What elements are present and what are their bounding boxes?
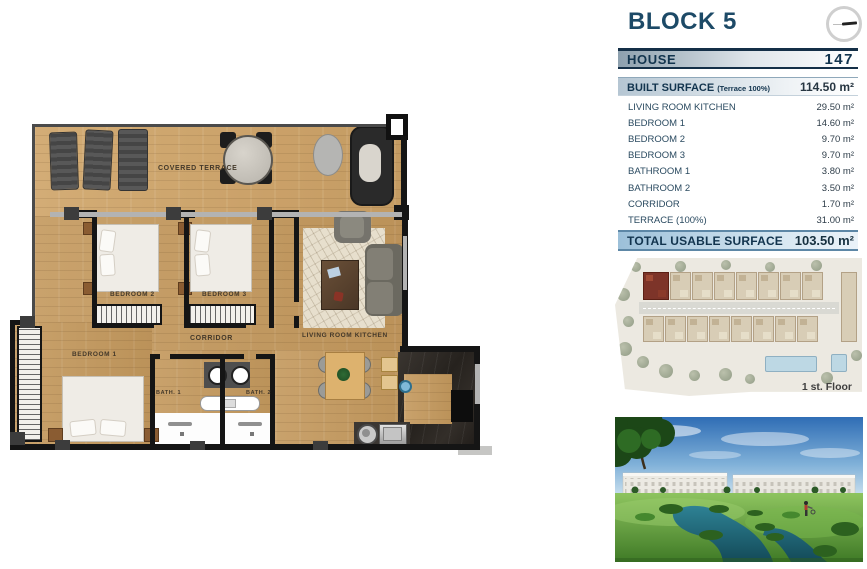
site-unit bbox=[797, 316, 818, 342]
floor-label: 1 st. Floor bbox=[802, 381, 852, 393]
site-plan: 1 st. Floor bbox=[615, 258, 862, 396]
row-label: BEDROOM 1 bbox=[628, 118, 685, 129]
wardrobe bbox=[94, 304, 162, 325]
pillow bbox=[99, 229, 117, 253]
tree bbox=[623, 316, 634, 327]
wall bbox=[92, 210, 97, 328]
kitchen-sink bbox=[399, 380, 412, 393]
photo-bottom-shade bbox=[615, 558, 863, 562]
column bbox=[257, 207, 272, 220]
wall bbox=[92, 323, 154, 328]
wall bbox=[10, 444, 480, 450]
sofa-cushion bbox=[367, 248, 393, 280]
room-label-corridor: CORRIDOR bbox=[190, 335, 233, 342]
site-unit bbox=[714, 272, 735, 300]
row-label: BATHROOM 1 bbox=[628, 166, 690, 177]
plant bbox=[337, 368, 350, 381]
table-row: BEDROOM 114.60 m² bbox=[620, 115, 857, 131]
table-row: BATHROOM 13.80 m² bbox=[620, 164, 857, 180]
site-building-right bbox=[841, 272, 857, 342]
armchair-cushion bbox=[340, 216, 364, 238]
bar-stool bbox=[381, 375, 398, 390]
tree bbox=[721, 260, 731, 270]
room-label-bedroom2: BEDROOM 2 bbox=[110, 291, 155, 298]
floor-plan: COVERED TERRACE BEDROOM 2 BEDROOM 3 CORR… bbox=[10, 110, 493, 462]
row-label: CORRIDOR bbox=[628, 199, 680, 210]
tree bbox=[659, 364, 673, 378]
table-row: BEDROOM 39.70 m² bbox=[620, 148, 857, 164]
hanging-chair-cushion bbox=[359, 144, 381, 182]
row-value: 14.60 m² bbox=[817, 118, 855, 129]
site-unit bbox=[731, 316, 752, 342]
row-label: TERRACE (100%) bbox=[628, 215, 707, 226]
wall bbox=[150, 354, 155, 446]
pillow bbox=[69, 419, 97, 438]
site-unit bbox=[780, 272, 801, 300]
room-label-terrace: COVERED TERRACE bbox=[158, 165, 237, 172]
washing-machine-door bbox=[362, 429, 370, 437]
compass-icon bbox=[826, 6, 862, 42]
render-photo bbox=[615, 417, 863, 562]
site-unit bbox=[753, 316, 774, 342]
site-unit bbox=[758, 272, 779, 300]
house-number: 147 bbox=[824, 51, 854, 68]
drain bbox=[250, 432, 254, 436]
site-pool-small bbox=[831, 354, 847, 372]
sun-lounger bbox=[82, 129, 113, 190]
wall bbox=[294, 316, 299, 328]
site-building-row-bottom bbox=[643, 316, 823, 342]
room-label-living: LIVING ROOM KITCHEN bbox=[302, 332, 388, 339]
steel-sink-basin bbox=[383, 427, 402, 441]
wall bbox=[294, 210, 299, 302]
house-header-bar: HOUSE 147 bbox=[618, 48, 858, 69]
drain bbox=[180, 432, 184, 436]
tree bbox=[811, 260, 822, 271]
row-value: 9.70 m² bbox=[822, 150, 854, 161]
site-unit bbox=[692, 272, 713, 300]
column bbox=[64, 207, 79, 220]
wall bbox=[184, 210, 189, 328]
built-surface-value: 114.50 m² bbox=[800, 80, 854, 94]
wardrobe bbox=[17, 326, 42, 442]
total-label: TOTAL USABLE SURFACE bbox=[627, 234, 783, 248]
pillow bbox=[194, 253, 211, 276]
wall bbox=[220, 354, 225, 446]
built-surface-bar: BUILT SURFACE(Terrace 100%) 114.50 m² bbox=[618, 77, 858, 96]
column bbox=[313, 441, 328, 450]
site-unit bbox=[709, 316, 730, 342]
row-value: 3.80 m² bbox=[822, 166, 854, 177]
site-road bbox=[639, 302, 839, 314]
site-pool bbox=[765, 356, 817, 372]
row-label: LIVING ROOM KITCHEN bbox=[628, 102, 736, 113]
compass-needle bbox=[842, 21, 857, 25]
wall bbox=[10, 320, 15, 448]
tree bbox=[631, 262, 641, 272]
site-building-row-top bbox=[643, 272, 823, 300]
row-value: 9.70 m² bbox=[822, 134, 854, 145]
wall bbox=[150, 354, 160, 359]
wall bbox=[32, 124, 408, 127]
wall bbox=[270, 354, 275, 446]
wall bbox=[256, 354, 275, 359]
window-strip bbox=[50, 212, 402, 217]
site-unit bbox=[687, 316, 708, 342]
site-unit bbox=[775, 316, 796, 342]
bar-stool bbox=[381, 357, 398, 372]
room-label-bath1: BATH. 1 bbox=[156, 390, 181, 396]
site-unit bbox=[643, 316, 664, 342]
wall bbox=[400, 346, 480, 352]
tree bbox=[719, 368, 732, 381]
tree bbox=[745, 374, 755, 384]
sink bbox=[231, 366, 250, 385]
site-unit bbox=[736, 272, 757, 300]
total-value: 103.50 m² bbox=[795, 233, 854, 248]
row-label: BEDROOM 3 bbox=[628, 150, 685, 161]
wardrobe bbox=[188, 304, 256, 325]
wall bbox=[474, 404, 480, 450]
column bbox=[20, 316, 35, 328]
wall bbox=[184, 323, 246, 328]
table-row: TERRACE (100%)31.00 m² bbox=[620, 212, 857, 228]
room-label-bedroom1: BEDROOM 1 bbox=[72, 351, 117, 358]
photo-buildings bbox=[623, 473, 855, 495]
site-unit bbox=[670, 272, 691, 300]
house-label: HOUSE bbox=[627, 52, 676, 67]
shower-fixture bbox=[238, 422, 262, 426]
table-row: BATHROOM 23.50 m² bbox=[620, 180, 857, 196]
oven-unit bbox=[451, 390, 473, 422]
window-strip bbox=[403, 236, 407, 290]
block-title: BLOCK 5 bbox=[628, 8, 737, 36]
coffee-table bbox=[321, 260, 359, 310]
row-label: BEDROOM 2 bbox=[628, 134, 685, 145]
pillow bbox=[194, 229, 212, 253]
render-photo-svg bbox=[615, 417, 863, 562]
round-table bbox=[223, 135, 273, 185]
site-unit bbox=[802, 272, 823, 300]
column bbox=[55, 440, 70, 450]
surface-table: LIVING ROOM KITCHEN29.50 m² BEDROOM 114.… bbox=[620, 99, 857, 229]
sun-lounger bbox=[118, 129, 148, 191]
shower-fixture bbox=[168, 422, 192, 426]
window-strip bbox=[475, 364, 480, 404]
built-surface-note: (Terrace 100%) bbox=[717, 84, 770, 93]
tree bbox=[689, 370, 700, 381]
pillow bbox=[99, 419, 126, 437]
side-table bbox=[313, 134, 343, 176]
tree bbox=[675, 261, 686, 272]
tree bbox=[618, 342, 632, 356]
total-surface-bar: TOTAL USABLE SURFACE 103.50 m² bbox=[618, 230, 858, 251]
column bbox=[166, 207, 181, 220]
wall bbox=[32, 124, 35, 324]
site-unit bbox=[665, 316, 686, 342]
site-unit-highlighted bbox=[643, 272, 669, 300]
row-value: 31.00 m² bbox=[817, 215, 855, 226]
room-label-bedroom3: BEDROOM 3 bbox=[202, 291, 247, 298]
table-row: BEDROOM 29.70 m² bbox=[620, 131, 857, 147]
room-label-bath2: BATH. 2 bbox=[246, 390, 271, 396]
built-surface-label: BUILT SURFACE bbox=[627, 82, 714, 94]
table-decor bbox=[333, 291, 343, 301]
bath-wet-area bbox=[153, 413, 275, 445]
row-value: 29.50 m² bbox=[817, 102, 855, 113]
sofa-cushion bbox=[367, 282, 393, 314]
wall bbox=[170, 354, 244, 359]
column bbox=[10, 432, 25, 445]
pillow bbox=[99, 254, 115, 277]
row-value: 1.70 m² bbox=[822, 199, 854, 210]
table-row: LIVING ROOM KITCHEN29.50 m² bbox=[620, 99, 857, 115]
built-surface-labels: BUILT SURFACE(Terrace 100%) bbox=[627, 78, 770, 96]
tree bbox=[765, 262, 775, 272]
tree bbox=[617, 288, 630, 301]
tree bbox=[637, 356, 649, 368]
kitchen-tongue-floor bbox=[404, 374, 452, 424]
tree bbox=[851, 350, 862, 361]
wall bbox=[269, 210, 274, 328]
row-label: BATHROOM 2 bbox=[628, 183, 690, 194]
table-row: CORRIDOR1.70 m² bbox=[620, 196, 857, 212]
row-value: 3.50 m² bbox=[822, 183, 854, 194]
wall bbox=[474, 346, 480, 364]
sun-lounger bbox=[49, 132, 79, 191]
column bbox=[190, 441, 205, 450]
